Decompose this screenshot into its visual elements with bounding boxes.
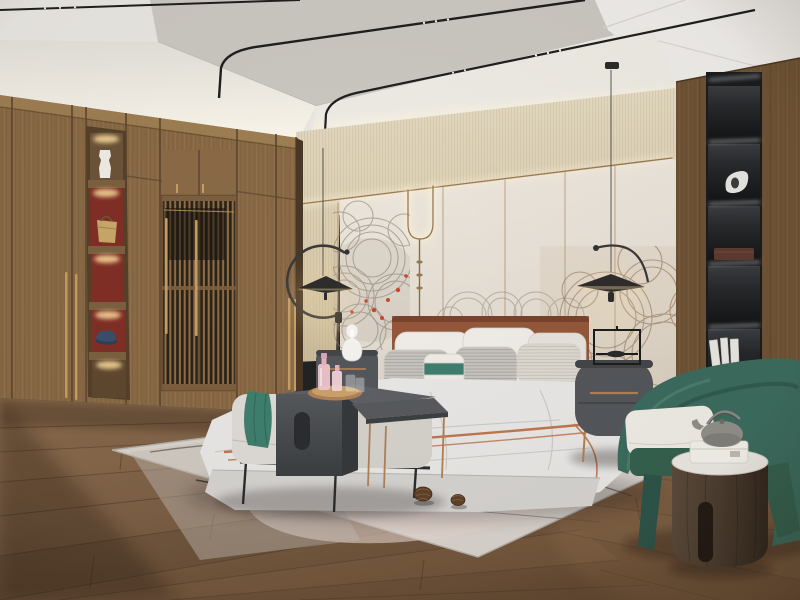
bedroom-render	[0, 0, 800, 600]
bedroom-photo	[0, 0, 800, 600]
vignette-overlay	[0, 0, 800, 600]
